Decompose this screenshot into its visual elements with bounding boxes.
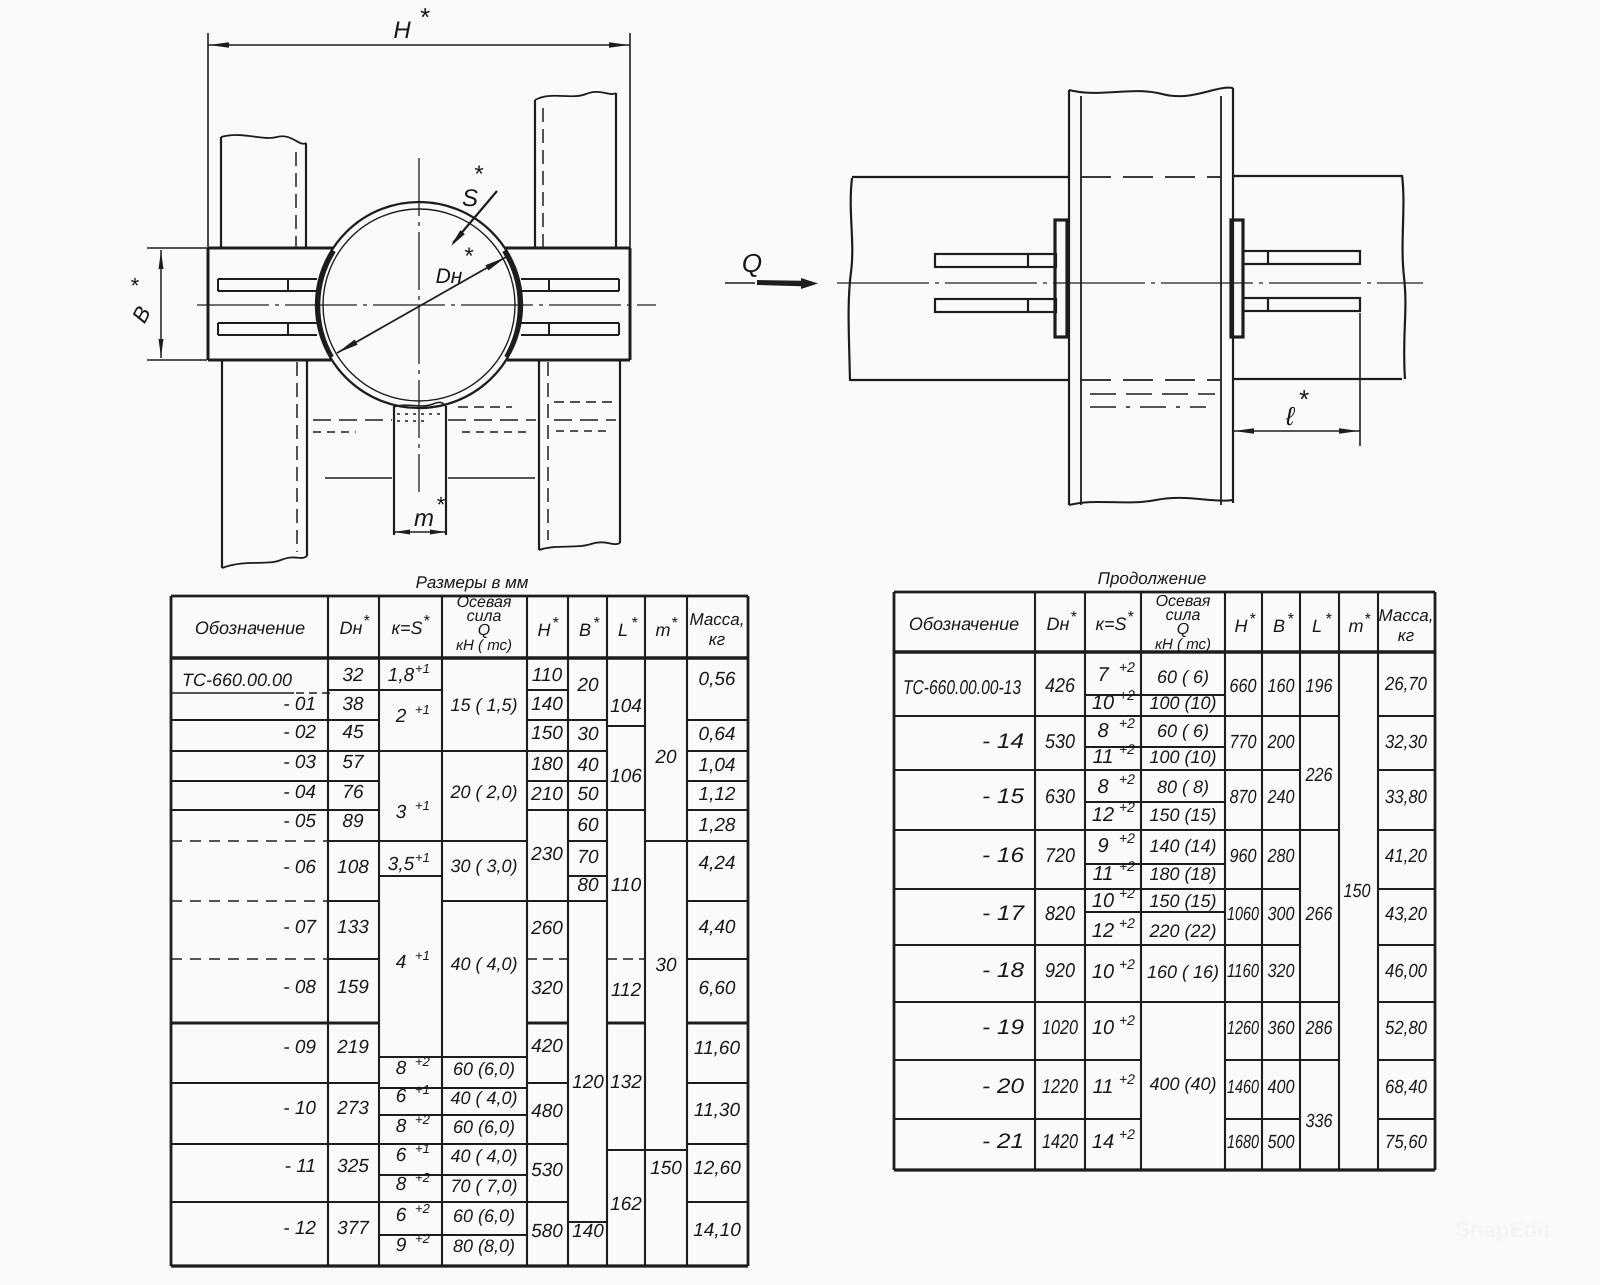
svg-text:кН ( тс): кН ( тс)	[1155, 636, 1211, 653]
svg-text:11: 11	[1093, 863, 1114, 885]
svg-text:150: 150	[1344, 881, 1371, 902]
svg-text:630: 630	[1045, 786, 1075, 808]
svg-text:14: 14	[1092, 1131, 1114, 1153]
svg-text:- 09: - 09	[283, 1037, 316, 1058]
svg-text:500: 500	[1268, 1132, 1295, 1153]
svg-text:6,60: 6,60	[699, 978, 736, 999]
svg-text:- 16: - 16	[982, 844, 1024, 867]
svg-text:400: 400	[1268, 1077, 1295, 1098]
svg-text:0,64: 0,64	[699, 724, 736, 745]
svg-text:325: 325	[337, 1156, 369, 1177]
svg-text:110: 110	[532, 665, 563, 686]
svg-text:- 19: - 19	[982, 1016, 1024, 1039]
svg-text:30: 30	[655, 955, 677, 976]
svg-text:11,60: 11,60	[694, 1038, 741, 1059]
svg-text:SnapEdit: SnapEdit	[1455, 1217, 1551, 1242]
svg-text:+2: +2	[415, 1054, 431, 1069]
svg-text:ℓ: ℓ	[1285, 401, 1296, 431]
svg-text:210: 210	[530, 784, 563, 805]
svg-text:41,20: 41,20	[1385, 846, 1427, 867]
svg-text:10: 10	[1092, 890, 1114, 912]
svg-text:- 10: - 10	[283, 1098, 316, 1119]
svg-text:Dн: Dн	[436, 265, 463, 288]
svg-text:Q: Q	[742, 248, 762, 278]
svg-text:68,40: 68,40	[1385, 1077, 1427, 1098]
svg-text:+1: +1	[415, 850, 430, 865]
svg-text:110: 110	[611, 875, 642, 896]
svg-text:ТС-660.00.00: ТС-660.00.00	[182, 670, 292, 690]
svg-text:+2: +2	[1119, 741, 1135, 757]
svg-text:Обозначение: Обозначение	[195, 618, 305, 638]
svg-text:4,40: 4,40	[699, 917, 736, 938]
svg-text:10: 10	[1092, 961, 1114, 983]
svg-text:1020: 1020	[1042, 1017, 1078, 1039]
svg-text:720: 720	[1045, 845, 1075, 867]
svg-text:Продолжение: Продолжение	[1098, 569, 1207, 588]
svg-text:12,60: 12,60	[693, 1158, 741, 1179]
svg-text:10: 10	[1092, 692, 1114, 714]
svg-text:9: 9	[396, 1235, 407, 1256]
svg-text:108: 108	[337, 857, 369, 878]
svg-text:+1: +1	[415, 1082, 430, 1097]
svg-text:200: 200	[1267, 732, 1295, 753]
svg-text:кг: кг	[709, 630, 725, 649]
svg-text:Dн: Dн	[1047, 614, 1070, 634]
svg-text:80 (8,0): 80 (8,0)	[453, 1236, 515, 1256]
svg-text:11,30: 11,30	[694, 1100, 741, 1121]
svg-text:60 (6,0): 60 (6,0)	[453, 1117, 515, 1137]
svg-text:150: 150	[650, 1158, 682, 1179]
svg-text:+2: +2	[1119, 771, 1135, 787]
svg-text:- 11: - 11	[285, 1156, 316, 1177]
svg-text:140: 140	[572, 1221, 604, 1242]
svg-text:кг: кг	[1398, 626, 1414, 645]
svg-text:*: *	[1364, 611, 1371, 628]
svg-text:к=S: к=S	[391, 618, 422, 638]
svg-text:32,30: 32,30	[1385, 732, 1427, 753]
svg-text:*: *	[631, 615, 638, 632]
svg-text:580: 580	[531, 1221, 563, 1242]
svg-text:- 14: - 14	[982, 730, 1024, 753]
svg-text:H: H	[538, 620, 552, 640]
svg-text:8: 8	[396, 1116, 407, 1137]
svg-text:1,28: 1,28	[699, 815, 736, 836]
svg-text:20 ( 2,0): 20 ( 2,0)	[449, 782, 517, 802]
svg-text:6: 6	[396, 1145, 407, 1166]
svg-text:L: L	[618, 620, 628, 640]
svg-text:кН ( тс): кН ( тс)	[456, 637, 512, 654]
svg-text:20: 20	[576, 675, 599, 696]
svg-text:- 18: - 18	[982, 959, 1024, 982]
svg-text:70 ( 7,0): 70 ( 7,0)	[450, 1176, 517, 1196]
svg-text:12: 12	[1092, 804, 1114, 826]
svg-text:- 15: - 15	[982, 785, 1024, 808]
svg-text:m: m	[414, 505, 434, 532]
svg-text:870: 870	[1230, 787, 1257, 808]
svg-text:H: H	[1235, 616, 1249, 636]
svg-text:Dн: Dн	[340, 618, 363, 638]
svg-text:273: 273	[336, 1098, 369, 1119]
svg-text:100 (10): 100 (10)	[1149, 693, 1216, 713]
svg-text:+2: +2	[415, 1231, 431, 1246]
svg-text:0,56: 0,56	[699, 669, 736, 690]
svg-text:220 (22): 220 (22)	[1148, 921, 1216, 941]
svg-text:1220: 1220	[1042, 1076, 1078, 1098]
svg-text:4,24: 4,24	[699, 853, 736, 874]
svg-text:1420: 1420	[1042, 1131, 1078, 1153]
svg-text:660: 660	[1230, 676, 1257, 697]
svg-text:43,20: 43,20	[1385, 904, 1427, 925]
svg-text:*: *	[1127, 609, 1134, 626]
svg-text:6: 6	[396, 1086, 407, 1107]
svg-text:1,8: 1,8	[388, 665, 415, 686]
svg-text:33,80: 33,80	[1385, 787, 1427, 808]
svg-text:280: 280	[1267, 846, 1295, 867]
svg-text:530: 530	[531, 1160, 563, 1181]
svg-text:38: 38	[342, 694, 364, 715]
svg-text:+1: +1	[415, 798, 430, 813]
svg-text:300: 300	[1268, 904, 1295, 925]
svg-text:+1: +1	[415, 702, 430, 717]
svg-text:- 01: - 01	[283, 694, 316, 715]
svg-text:H: H	[393, 17, 411, 44]
svg-text:+2: +2	[1119, 915, 1135, 931]
svg-text:- 03: - 03	[283, 752, 316, 773]
svg-text:+2: +2	[1119, 687, 1135, 703]
svg-text:10: 10	[1092, 1017, 1114, 1039]
svg-text:336: 336	[1306, 1111, 1333, 1132]
svg-text:Масса,: Масса,	[690, 610, 745, 629]
svg-text:7: 7	[1097, 664, 1109, 686]
svg-text:+2: +2	[1119, 956, 1135, 972]
svg-text:3: 3	[396, 802, 407, 823]
svg-text:- 20: - 20	[982, 1075, 1024, 1098]
svg-text:2: 2	[395, 706, 407, 727]
svg-text:80 ( 8): 80 ( 8)	[1157, 777, 1209, 797]
svg-text:32: 32	[342, 665, 364, 686]
svg-text:226: 226	[1305, 765, 1333, 786]
svg-text:400 (40): 400 (40)	[1149, 1074, 1216, 1094]
svg-text:133: 133	[337, 917, 369, 938]
svg-text:*: *	[130, 273, 140, 298]
svg-text:- 21: - 21	[982, 1130, 1024, 1153]
svg-text:60: 60	[577, 815, 599, 836]
svg-text:m: m	[656, 620, 671, 640]
svg-text:89: 89	[342, 811, 364, 832]
svg-text:8: 8	[396, 1058, 407, 1079]
svg-text:480: 480	[531, 1101, 563, 1122]
svg-text:60 ( 6): 60 ( 6)	[1157, 667, 1209, 687]
svg-text:- 04: - 04	[283, 782, 316, 803]
svg-text:160 ( 16): 160 ( 16)	[1147, 962, 1219, 982]
svg-text:*: *	[671, 615, 678, 632]
svg-text:*: *	[463, 243, 473, 270]
svg-text:160: 160	[1268, 676, 1295, 697]
svg-text:- 07: - 07	[283, 917, 317, 938]
svg-text:8: 8	[396, 1174, 407, 1195]
svg-text:180 (18): 180 (18)	[1149, 864, 1216, 884]
svg-text:+1: +1	[415, 661, 430, 676]
svg-text:*: *	[1070, 609, 1077, 626]
svg-text:180: 180	[531, 754, 563, 775]
svg-text:120: 120	[572, 1072, 604, 1093]
svg-text:1260: 1260	[1227, 1018, 1259, 1039]
svg-text:1,04: 1,04	[699, 755, 736, 776]
svg-text:ТС-660.00.00-13: ТС-660.00.00-13	[903, 677, 1021, 699]
svg-text:9: 9	[1097, 835, 1108, 857]
svg-text:B: B	[1273, 616, 1285, 636]
svg-text:*: *	[1287, 611, 1294, 628]
svg-text:- 17: - 17	[982, 902, 1026, 925]
svg-text:40: 40	[577, 755, 599, 776]
svg-text:- 06: - 06	[283, 857, 316, 878]
svg-text:*: *	[1298, 384, 1309, 414]
svg-text:*: *	[423, 613, 430, 630]
svg-text:40 ( 4,0): 40 ( 4,0)	[450, 1088, 517, 1108]
svg-text:- 08: - 08	[283, 977, 316, 998]
svg-text:3,5: 3,5	[388, 854, 415, 875]
svg-text:1460: 1460	[1227, 1077, 1259, 1098]
svg-text:11: 11	[1093, 1076, 1114, 1098]
svg-text:377: 377	[337, 1218, 370, 1239]
svg-text:+2: +2	[1119, 1071, 1135, 1087]
svg-text:+2: +2	[415, 1170, 431, 1185]
svg-text:1680: 1680	[1227, 1132, 1259, 1153]
svg-text:8: 8	[1097, 720, 1108, 742]
svg-text:320: 320	[1268, 961, 1295, 982]
svg-text:40 ( 4,0): 40 ( 4,0)	[450, 954, 517, 974]
svg-text:920: 920	[1045, 960, 1075, 982]
svg-text:14,10: 14,10	[693, 1220, 741, 1241]
svg-text:60 (6,0): 60 (6,0)	[453, 1206, 515, 1226]
svg-text:104: 104	[610, 696, 642, 717]
svg-text:286: 286	[1305, 1018, 1333, 1039]
svg-text:+2: +2	[1119, 799, 1135, 815]
svg-text:530: 530	[1045, 731, 1075, 753]
svg-text:140 (14): 140 (14)	[1149, 836, 1216, 856]
svg-text:*: *	[1249, 611, 1256, 628]
svg-text:76: 76	[342, 782, 364, 803]
svg-text:m: m	[1349, 616, 1364, 636]
svg-text:420: 420	[531, 1036, 563, 1057]
svg-text:+1: +1	[415, 948, 430, 963]
svg-text:к=S: к=S	[1095, 614, 1126, 634]
svg-text:80: 80	[577, 875, 599, 896]
svg-text:+2: +2	[415, 1112, 431, 1127]
svg-text:960: 960	[1230, 846, 1257, 867]
svg-text:1,12: 1,12	[699, 784, 736, 805]
svg-text:140: 140	[531, 694, 563, 715]
svg-text:4: 4	[396, 952, 407, 973]
svg-text:106: 106	[610, 766, 642, 787]
svg-text:30 ( 3,0): 30 ( 3,0)	[450, 856, 517, 876]
svg-text:770: 770	[1230, 732, 1257, 753]
svg-text:219: 219	[336, 1037, 369, 1058]
svg-text:820: 820	[1045, 903, 1075, 925]
svg-text:75,60: 75,60	[1385, 1132, 1427, 1153]
svg-text:132: 132	[610, 1072, 642, 1093]
svg-text:8: 8	[1097, 776, 1108, 798]
svg-text:+2: +2	[1119, 1012, 1135, 1028]
svg-text:40 ( 4,0): 40 ( 4,0)	[450, 1146, 517, 1166]
svg-text:*: *	[552, 615, 559, 632]
svg-text:6: 6	[396, 1205, 407, 1226]
svg-text:*: *	[419, 2, 430, 32]
svg-text:20: 20	[654, 747, 677, 768]
svg-text:70: 70	[577, 847, 599, 868]
svg-text:+2: +2	[1119, 715, 1135, 731]
svg-text:1160: 1160	[1227, 961, 1259, 982]
svg-text:360: 360	[1268, 1018, 1295, 1039]
svg-text:+2: +2	[1119, 830, 1135, 846]
svg-text:Обозначение: Обозначение	[909, 614, 1019, 634]
svg-text:50: 50	[577, 784, 599, 805]
svg-text:162: 162	[610, 1194, 642, 1215]
svg-text:- 12: - 12	[283, 1218, 316, 1239]
svg-text:60 ( 6): 60 ( 6)	[1157, 721, 1209, 741]
svg-text:150 (15): 150 (15)	[1149, 805, 1216, 825]
svg-text:11: 11	[1093, 746, 1114, 768]
svg-text:+2: +2	[1119, 885, 1135, 901]
svg-text:+2: +2	[415, 1201, 431, 1216]
svg-text:*: *	[593, 615, 600, 632]
svg-text:150: 150	[531, 723, 563, 744]
svg-text:57: 57	[342, 752, 365, 773]
svg-text:Масса,: Масса,	[1379, 606, 1434, 625]
svg-text:100 (10): 100 (10)	[1149, 747, 1216, 767]
svg-text:230: 230	[530, 844, 563, 865]
svg-text:46,00: 46,00	[1385, 961, 1427, 982]
svg-text:- 02: - 02	[283, 722, 316, 743]
svg-text:30: 30	[577, 724, 599, 745]
svg-text:+2: +2	[1119, 659, 1135, 675]
svg-text:*: *	[473, 161, 483, 188]
svg-text:240: 240	[1267, 787, 1295, 808]
svg-text:*: *	[363, 613, 370, 630]
svg-text:+2: +2	[1119, 858, 1135, 874]
svg-text:150 (15): 150 (15)	[1149, 891, 1216, 911]
svg-text:26,70: 26,70	[1384, 674, 1427, 695]
svg-text:Размеры в мм: Размеры в мм	[416, 573, 529, 592]
svg-text:60 (6,0): 60 (6,0)	[453, 1059, 515, 1079]
svg-text:112: 112	[611, 980, 642, 1001]
svg-text:52,80: 52,80	[1385, 1018, 1427, 1039]
svg-text:266: 266	[1305, 904, 1333, 925]
svg-text:159: 159	[337, 977, 369, 998]
svg-text:+2: +2	[1119, 1126, 1135, 1142]
svg-text:S: S	[462, 185, 478, 212]
svg-text:- 05: - 05	[283, 811, 316, 832]
svg-text:L: L	[1312, 616, 1322, 636]
svg-text:*: *	[1325, 611, 1332, 628]
svg-text:45: 45	[342, 722, 364, 743]
svg-text:B: B	[579, 620, 591, 640]
svg-text:320: 320	[531, 978, 563, 999]
svg-text:12: 12	[1092, 920, 1114, 942]
svg-text:15 ( 1,5): 15 ( 1,5)	[450, 695, 517, 715]
svg-text:426: 426	[1045, 675, 1076, 697]
svg-text:*: *	[436, 492, 446, 517]
svg-text:260: 260	[530, 918, 563, 939]
svg-text:196: 196	[1306, 676, 1333, 697]
svg-text:+1: +1	[415, 1141, 430, 1156]
svg-text:1060: 1060	[1227, 904, 1259, 925]
